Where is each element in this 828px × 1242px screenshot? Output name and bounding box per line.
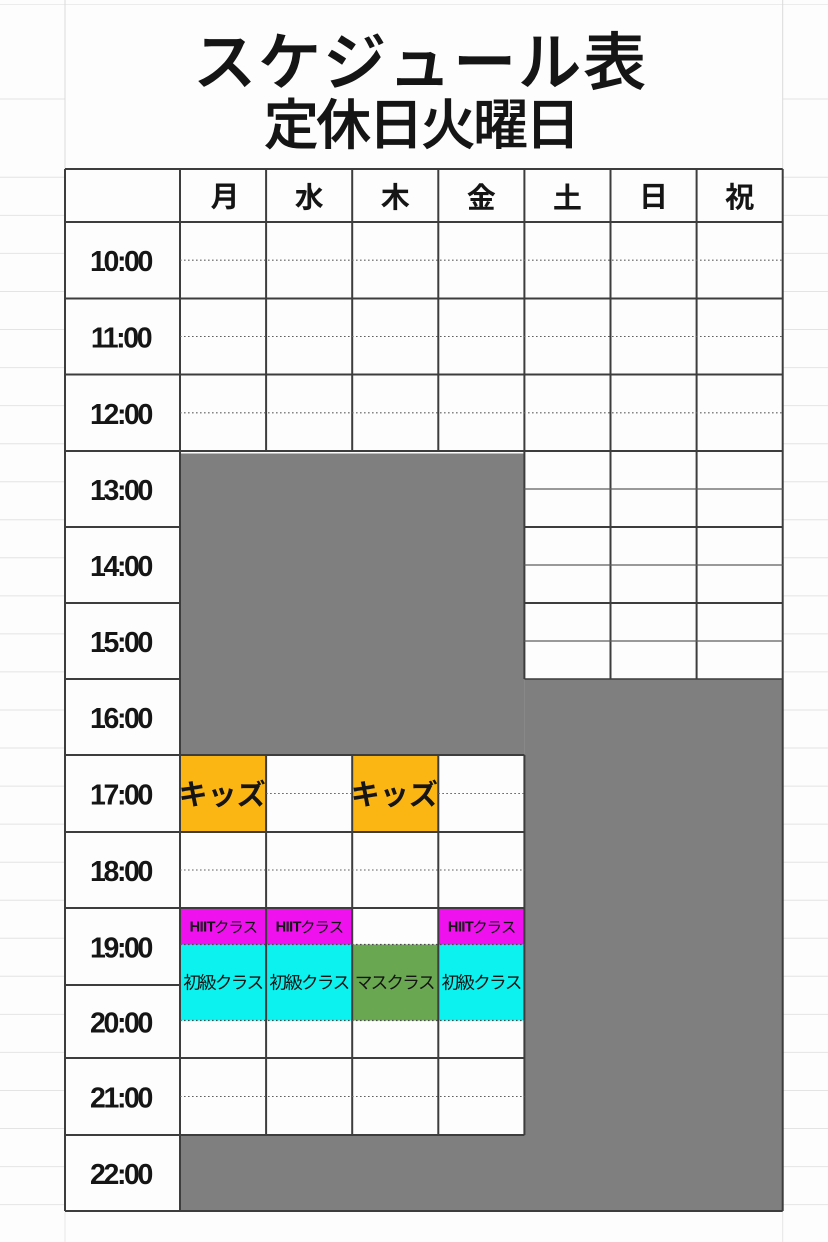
svg-text:19:00: 19:00 xyxy=(90,933,152,965)
svg-text:HIIT: HIIT xyxy=(276,920,302,936)
svg-text:22:00: 22:00 xyxy=(90,1159,152,1191)
svg-text:21:00: 21:00 xyxy=(90,1083,152,1115)
svg-text:HIIT: HIIT xyxy=(448,920,474,936)
svg-text:18:00: 18:00 xyxy=(90,856,152,888)
svg-text:15:00: 15:00 xyxy=(90,627,152,659)
svg-text:13:00: 13:00 xyxy=(90,475,152,507)
svg-text:HIIT: HIIT xyxy=(190,920,216,936)
svg-text:16:00: 16:00 xyxy=(90,703,152,735)
svg-text:14:00: 14:00 xyxy=(90,551,152,583)
svg-text:12:00: 12:00 xyxy=(90,399,152,431)
svg-text:20:00: 20:00 xyxy=(90,1008,152,1040)
svg-text:17:00: 17:00 xyxy=(90,780,152,812)
svg-text:10:00: 10:00 xyxy=(90,246,152,278)
svg-text:11:00: 11:00 xyxy=(91,323,152,355)
